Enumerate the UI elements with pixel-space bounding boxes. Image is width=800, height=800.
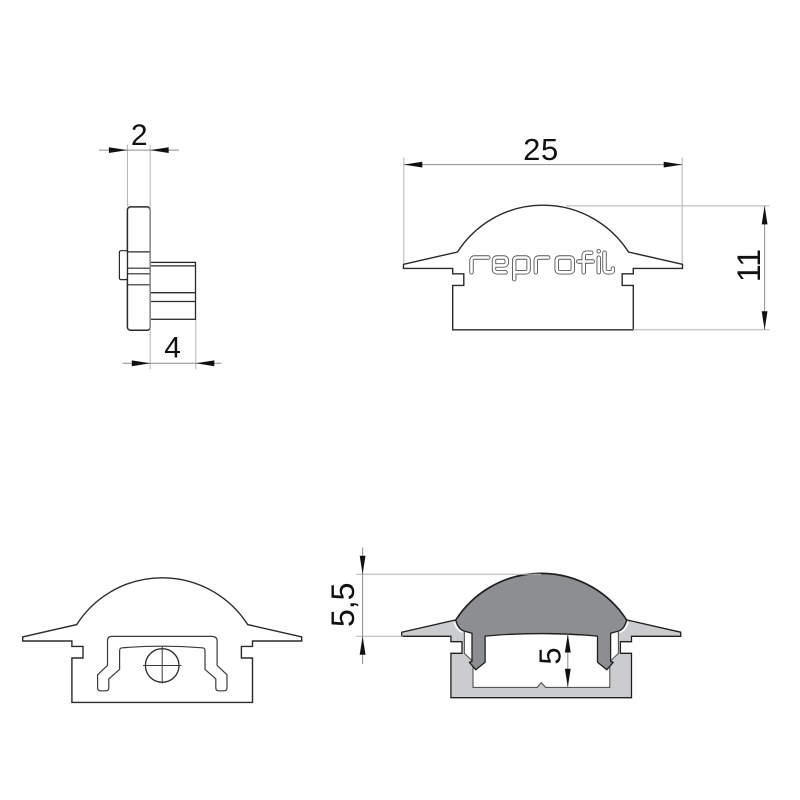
svg-text:11: 11 [731, 249, 767, 282]
svg-text:25: 25 [523, 132, 559, 167]
svg-text:5: 5 [533, 647, 568, 664]
svg-text:2: 2 [131, 119, 148, 152]
svg-text:4: 4 [164, 332, 181, 365]
svg-text:5,5: 5,5 [325, 583, 361, 627]
